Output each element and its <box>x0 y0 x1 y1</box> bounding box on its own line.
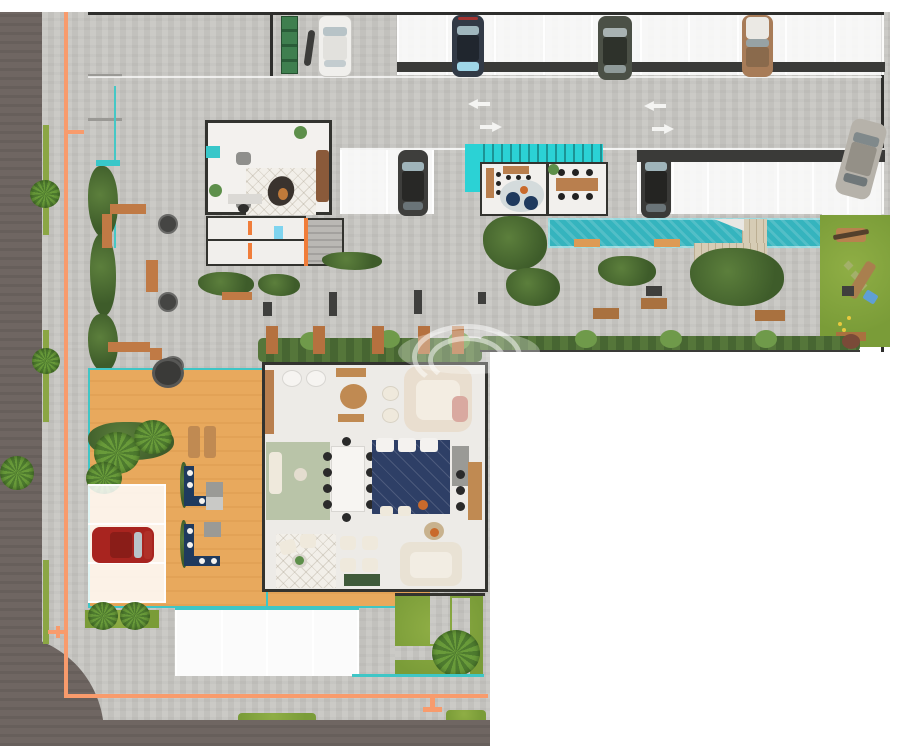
car-red <box>92 527 154 563</box>
teal-edge <box>175 608 359 610</box>
planter-tree <box>158 292 178 312</box>
cream-armchair <box>340 536 356 550</box>
dining-chairs <box>572 169 579 176</box>
lawn-path <box>395 646 433 660</box>
deck-lounger <box>188 426 200 458</box>
barrel-chair <box>382 386 399 401</box>
stall-posts-row1 <box>737 62 740 72</box>
street-tree <box>32 348 60 374</box>
cream-armchair <box>362 558 378 572</box>
car-white <box>318 15 352 77</box>
stall-posts-row2 <box>637 150 640 162</box>
hedge-tree <box>660 330 682 348</box>
sofa-pillows <box>187 528 193 534</box>
plant <box>295 556 304 565</box>
stool <box>380 506 393 516</box>
deck-table <box>206 482 223 497</box>
stall-lines-bottom <box>175 610 177 676</box>
stall-lines-bottom-left <box>88 523 166 525</box>
car-roof <box>323 36 347 60</box>
stall-lines-row2-left <box>432 150 434 214</box>
hedge-tree <box>575 330 597 348</box>
boundary-marker <box>423 707 442 712</box>
car-rear-glass <box>604 65 626 73</box>
stall-posts-row1 <box>882 62 885 72</box>
lobby-chair-accent <box>278 188 288 200</box>
stall-lines-row2-left <box>386 150 388 214</box>
sofa-pillows <box>187 542 193 548</box>
bar-chairs <box>456 470 465 479</box>
car-roof <box>603 37 627 65</box>
pool-canopy <box>465 144 603 162</box>
bar-stools <box>496 181 501 186</box>
beige-sofa-inner <box>410 552 452 578</box>
dining-chairs <box>323 500 332 509</box>
car-rear-glass <box>646 204 666 212</box>
deck-table <box>204 522 221 537</box>
table-chairs <box>506 175 511 180</box>
garden-bench <box>102 214 112 248</box>
teal-edge <box>114 86 116 166</box>
watermark-arc <box>428 336 506 384</box>
car-windshield <box>323 27 347 36</box>
dining-chairs <box>572 193 579 200</box>
deck-palm <box>134 420 172 454</box>
red-bush <box>842 334 860 349</box>
stall-lines-bottom <box>221 610 223 676</box>
deck-lounger <box>204 426 216 458</box>
boundary-line-vertical <box>64 12 68 696</box>
lobby-armchair <box>236 152 251 165</box>
teal-edge <box>352 674 484 677</box>
car-brown-white <box>742 15 773 77</box>
strip-palm <box>120 602 150 630</box>
brick-planter <box>372 326 384 354</box>
stall-posts-row1 <box>397 62 400 72</box>
sofa-pillows <box>199 498 205 504</box>
bar-chairs <box>456 502 465 511</box>
reception-desk-teal <box>206 146 220 158</box>
boundary-line-horizontal <box>64 694 488 698</box>
dining-chairs <box>342 513 351 522</box>
car-roof <box>110 532 132 558</box>
dining-chairs <box>586 193 593 200</box>
restroom-block <box>206 216 306 266</box>
verge-strip <box>43 330 49 422</box>
stall-lines-bottom-left <box>88 484 166 486</box>
stall-posts-row1 <box>591 62 594 72</box>
stall-posts-row1 <box>640 62 643 72</box>
brick-planter <box>313 326 325 354</box>
lobby-sofa-wood <box>316 150 329 202</box>
flowers <box>847 316 851 320</box>
restroom-door <box>248 221 252 235</box>
garden-bench <box>222 292 252 300</box>
dining-table-long <box>556 178 598 191</box>
car-rear-glass <box>403 202 423 210</box>
curb-verge <box>446 710 486 720</box>
round-table <box>306 370 326 387</box>
sofa-pillows <box>187 482 193 488</box>
bollard <box>263 302 272 316</box>
car-taillights <box>458 17 478 20</box>
garden-bench <box>150 348 162 360</box>
pool-bench <box>654 239 680 247</box>
garden-bench <box>110 204 146 214</box>
daybed-accent <box>520 186 528 194</box>
car-dark <box>398 150 428 216</box>
car-rear-glass <box>457 62 479 71</box>
flowers <box>838 322 842 326</box>
stall-posts-row2 <box>742 150 745 162</box>
hedge-tree <box>755 330 777 348</box>
wood-bench <box>755 310 785 321</box>
shrub-bed <box>258 274 300 296</box>
teal-bench <box>96 160 120 166</box>
brick-planter <box>266 326 278 354</box>
bollard <box>329 292 337 316</box>
pavilion-plant <box>548 164 559 175</box>
bollard <box>842 286 854 296</box>
restroom-divider <box>206 239 306 241</box>
garden-bench <box>108 342 150 352</box>
cream-sofa <box>269 452 282 494</box>
car-hood <box>144 531 152 559</box>
white-armchair <box>398 438 416 452</box>
stall-posts-row1 <box>494 62 497 72</box>
planter-tree <box>158 214 178 234</box>
side-table-orange <box>418 500 428 510</box>
car-windshield <box>402 162 424 171</box>
hall-wood-cabinet <box>265 370 274 434</box>
car-roof <box>402 171 424 201</box>
dining-chairs <box>586 169 593 176</box>
deck-table <box>206 497 223 510</box>
white-armchair <box>376 438 394 452</box>
dining-table <box>331 446 365 512</box>
dining-chairs <box>323 484 332 493</box>
wood-console <box>336 368 366 377</box>
stall-posts-row1 <box>688 62 691 72</box>
round-table <box>282 370 302 387</box>
cream-armchair <box>300 534 316 548</box>
car-roof <box>457 35 479 61</box>
stall-lines-bottom <box>266 610 268 676</box>
car-windshield <box>746 39 769 47</box>
street-palm <box>0 456 34 490</box>
bollard <box>646 286 662 296</box>
boundary-marker <box>56 626 60 638</box>
stall-lines-bottom <box>357 610 359 676</box>
lawn-palm <box>432 630 480 676</box>
deck-tree <box>152 358 184 388</box>
green-console <box>344 574 380 586</box>
cream-armchair <box>362 536 378 550</box>
stall-posts-row2 <box>777 150 780 162</box>
stall-lines-bottom <box>312 610 314 676</box>
car-gray-green <box>598 16 632 80</box>
stool <box>398 506 411 516</box>
wood-round-table <box>340 384 367 409</box>
dining-chairs <box>342 437 351 446</box>
bollard <box>478 292 486 304</box>
stall-posts-row1 <box>785 62 788 72</box>
lobby-plant <box>294 126 307 139</box>
wood-bench <box>338 414 364 422</box>
garage-divider <box>88 118 122 121</box>
lobby-plant <box>209 184 222 197</box>
curb-verge <box>238 713 316 720</box>
wood-bench <box>593 308 619 319</box>
car-windshield <box>134 532 142 558</box>
boundary-tick <box>68 130 84 134</box>
water-feature-blue <box>274 226 283 239</box>
restroom-door <box>248 243 252 259</box>
pool-bench <box>574 239 600 247</box>
lobby-desk-chair <box>238 204 249 213</box>
dining-chairs <box>323 468 332 477</box>
barrel-chair <box>382 408 399 423</box>
stall-lines-row2-left <box>340 150 342 214</box>
rattan-accent <box>430 528 439 537</box>
white-armchair <box>420 438 438 452</box>
bar-chairs <box>456 486 465 495</box>
car-dark-blue <box>452 15 484 77</box>
stall-posts-row1 <box>834 62 837 72</box>
pouf <box>294 468 307 481</box>
pool-canopy-arm <box>465 144 481 192</box>
floor-plan-rendering <box>0 0 900 746</box>
wall-stub <box>395 593 485 596</box>
strip-palm <box>88 602 118 630</box>
navy-daybed <box>506 192 520 206</box>
sofa-throw <box>452 396 468 422</box>
stall-posts-row2 <box>882 150 885 162</box>
car-roof <box>645 171 667 203</box>
car-hood-white <box>746 17 769 39</box>
wood-table <box>503 166 529 174</box>
bollard <box>414 290 422 314</box>
street-tree <box>30 180 60 208</box>
stall-lines-bottom <box>175 610 359 676</box>
car-roof <box>746 47 769 67</box>
storage-lockers <box>281 16 298 74</box>
stall-posts-row2 <box>812 150 815 162</box>
cream-armchair <box>340 558 356 572</box>
sofa-pillows <box>187 470 193 476</box>
wood-bar <box>468 462 482 520</box>
car-windshield <box>603 28 627 37</box>
navy-daybed <box>524 196 538 210</box>
stall-posts-row1 <box>543 62 546 72</box>
garage-wall-stub <box>270 14 273 76</box>
dining-chairs <box>558 193 565 200</box>
stall-posts-row2 <box>672 150 675 162</box>
stall-end-line <box>164 484 166 602</box>
wood-bench <box>641 298 667 309</box>
bar-counter <box>486 168 494 198</box>
car-rear-glass <box>324 60 346 67</box>
stall-posts-row1 <box>446 62 449 72</box>
sofa-pillows <box>199 558 205 564</box>
car-dark <box>641 150 671 218</box>
stall-posts-row2 <box>707 150 710 162</box>
bar-stools <box>496 172 501 177</box>
dining-chairs <box>558 169 565 176</box>
car-windshield <box>457 26 479 35</box>
gray-console <box>452 446 469 486</box>
stair-accent <box>304 218 308 266</box>
car-windshield <box>645 162 667 171</box>
lobby-desk <box>228 194 262 204</box>
garden-bench <box>146 260 158 292</box>
sofa-pillows <box>211 558 217 564</box>
dining-chairs <box>323 452 332 461</box>
